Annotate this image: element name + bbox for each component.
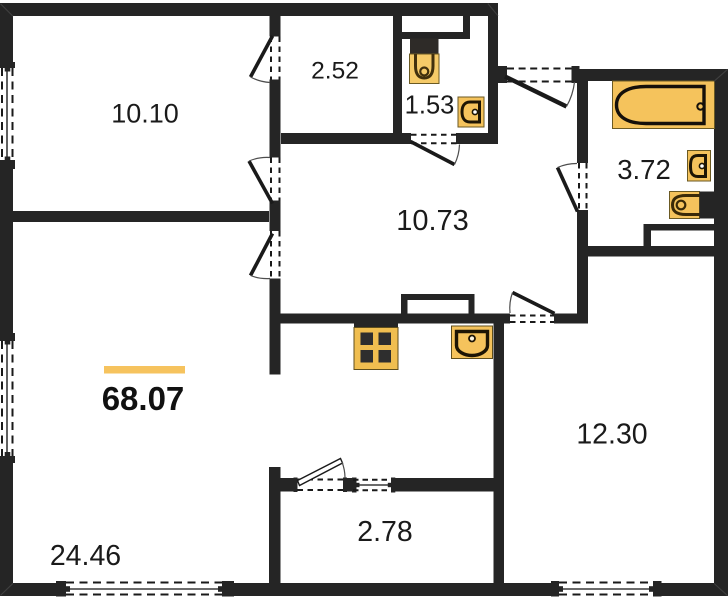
svg-text:10.73: 10.73 [396,205,469,237]
svg-text:3.72: 3.72 [617,154,671,185]
svg-text:1.53: 1.53 [405,91,455,119]
svg-text:2.78: 2.78 [357,516,412,548]
svg-text:24.46: 24.46 [50,540,121,572]
svg-text:10.10: 10.10 [111,99,179,129]
svg-text:2.52: 2.52 [311,57,359,84]
svg-text:68.07: 68.07 [102,380,185,417]
svg-text:12.30: 12.30 [576,418,647,450]
